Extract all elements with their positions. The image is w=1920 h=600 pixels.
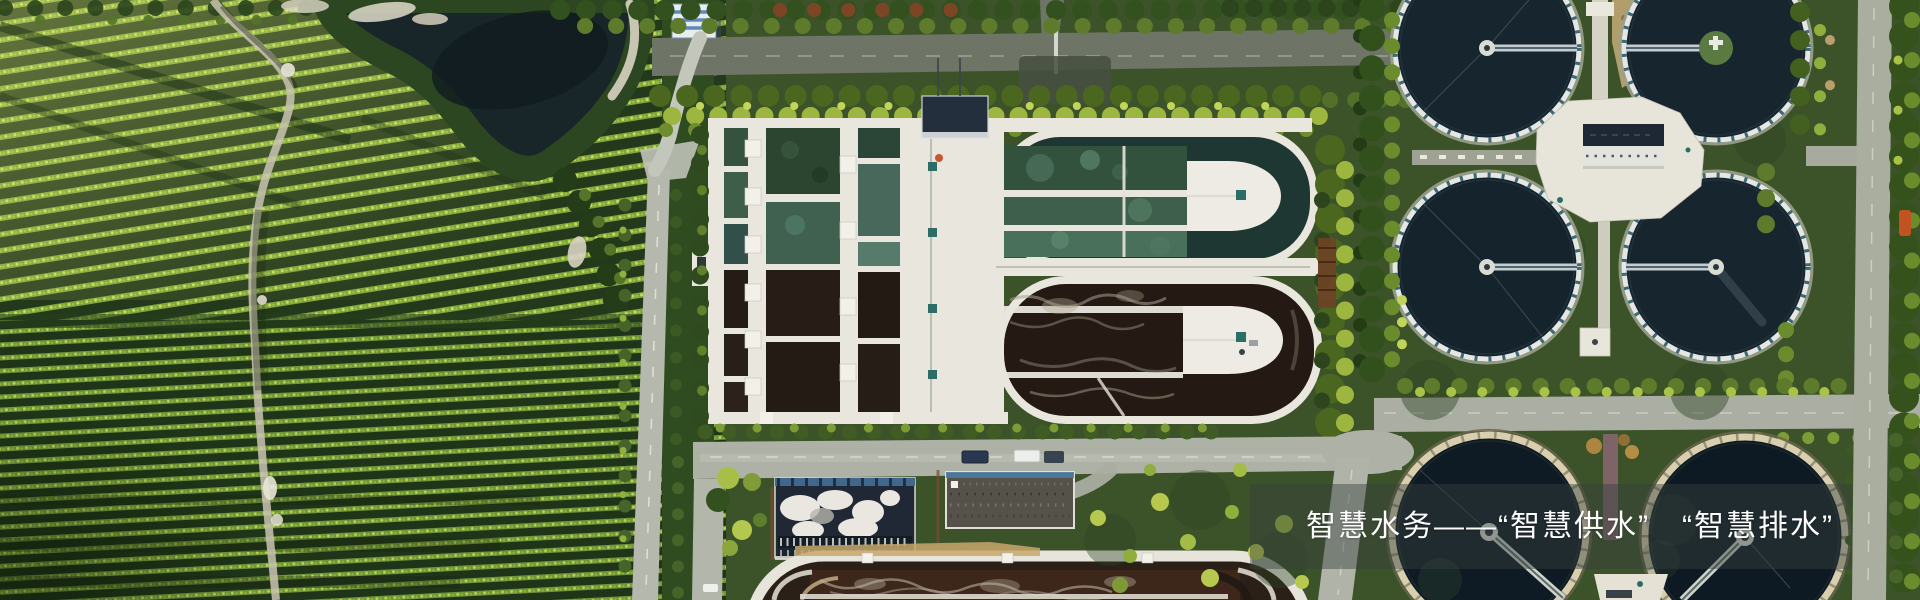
bottom-aeration-basin	[750, 542, 1308, 600]
aeration-racetrack-lower	[996, 276, 1322, 424]
hero-banner: 智慧水务——“智慧供水” “智慧排水”	[0, 0, 1920, 600]
clarifier-center-platform	[1536, 97, 1704, 222]
east-road	[1852, 0, 1892, 600]
east-edge-trees	[1896, 6, 1912, 596]
caption-text: 智慧水务——“智慧供水” “智慧排水”	[1250, 484, 1852, 569]
caption-banner: 智慧水务——“智慧供水” “智慧排水”	[1250, 484, 1852, 569]
red-equipment	[1899, 210, 1911, 236]
gravel-roof-building	[946, 472, 1074, 528]
tree-mass-facility-east	[1318, 150, 1345, 440]
aeration-racetrack-upper	[996, 128, 1318, 268]
